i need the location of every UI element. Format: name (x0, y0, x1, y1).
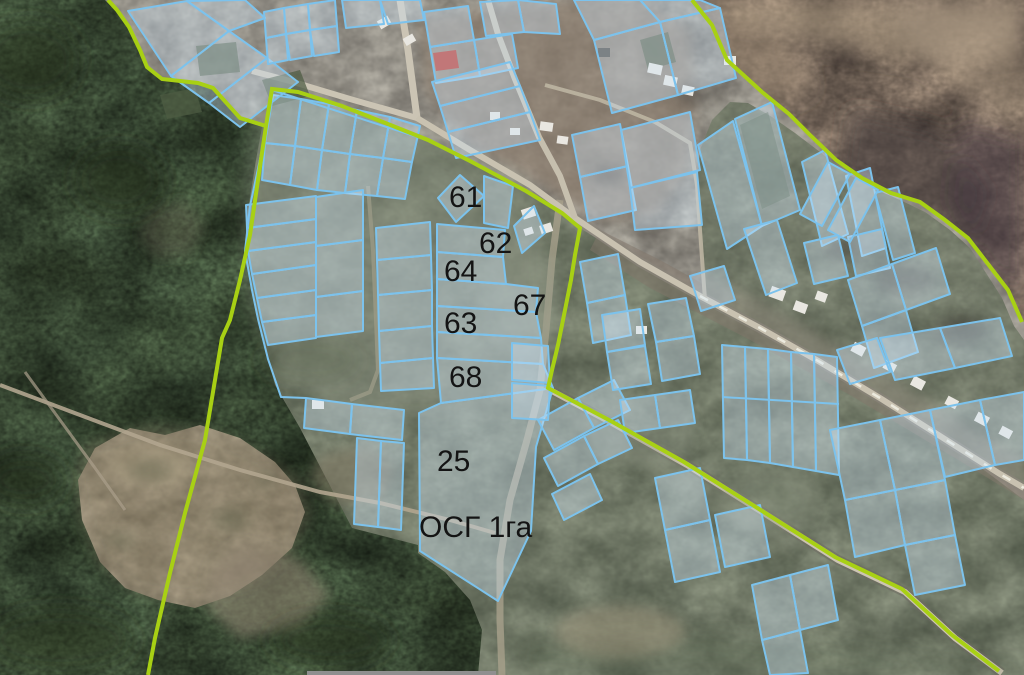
svg-text:ОСГ 1га: ОСГ 1га (419, 511, 533, 544)
svg-text:67: 67 (513, 289, 546, 322)
svg-text:62: 62 (479, 227, 512, 260)
svg-text:63: 63 (444, 307, 477, 340)
svg-text:61: 61 (449, 181, 482, 214)
svg-text:68: 68 (449, 361, 482, 394)
svg-text:25: 25 (437, 445, 470, 478)
svg-text:64: 64 (444, 255, 477, 288)
